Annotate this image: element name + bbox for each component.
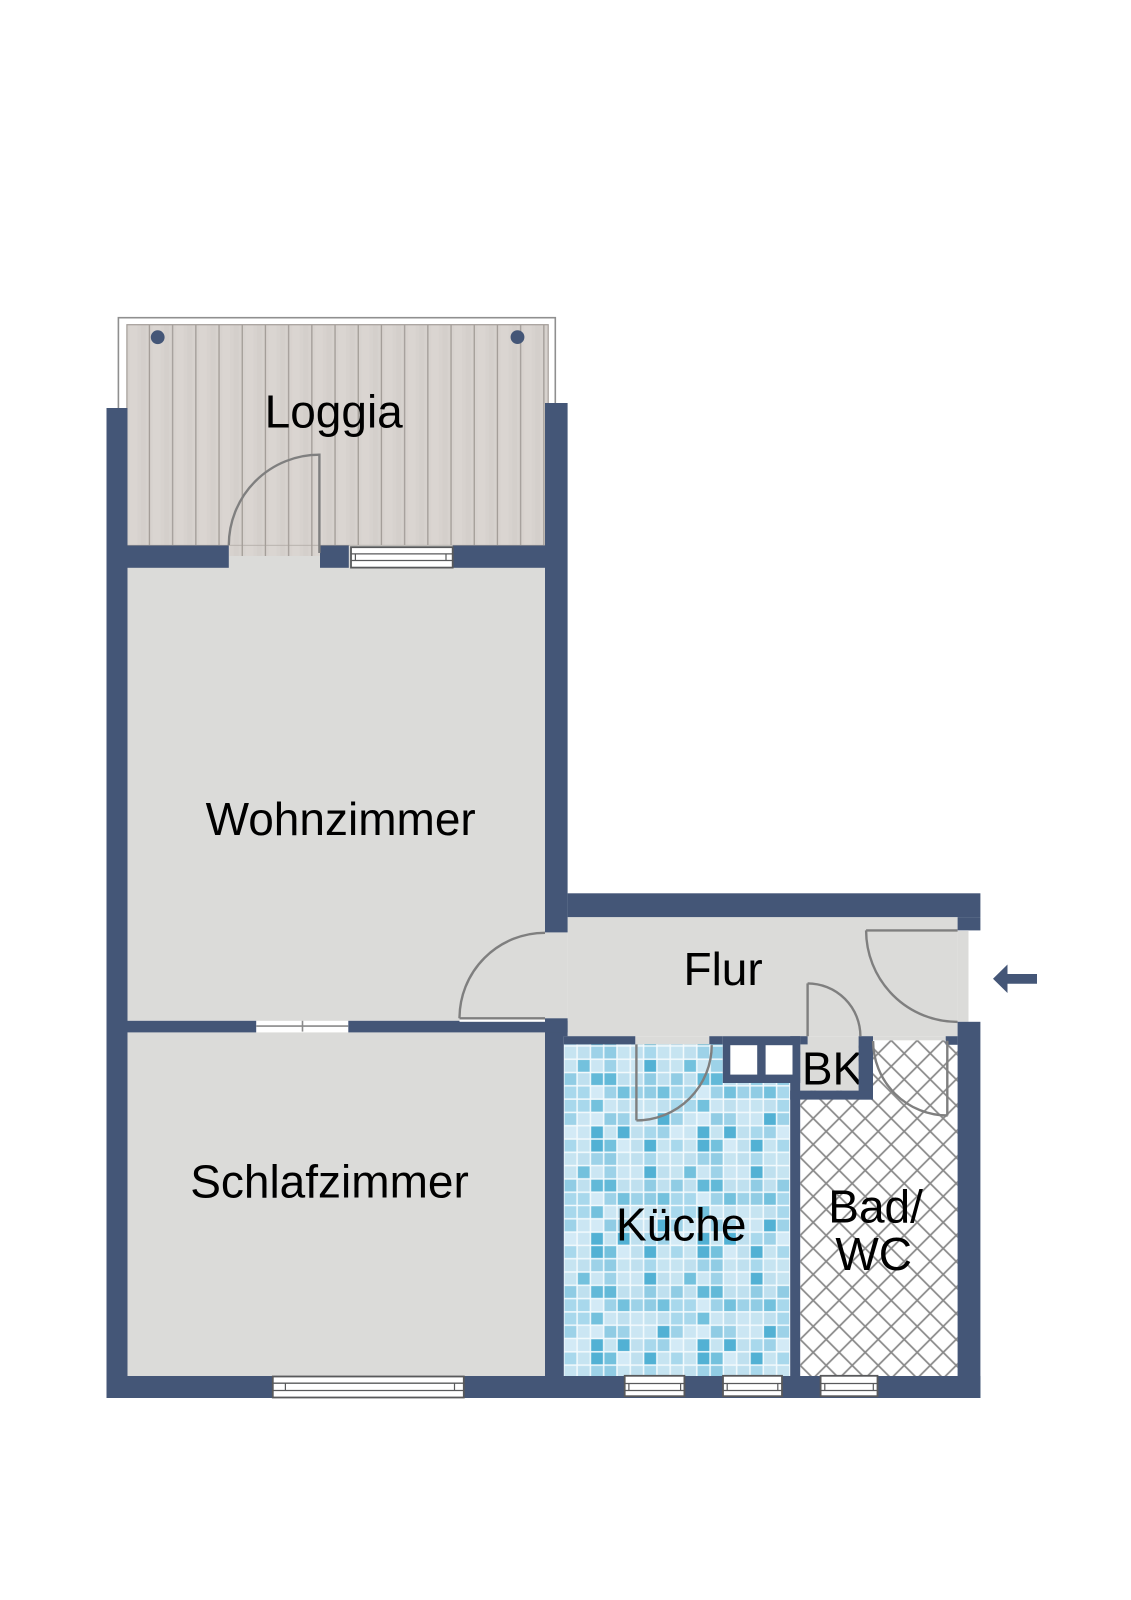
svg-text:Wohnzimmer: Wohnzimmer	[206, 793, 476, 845]
svg-text:Loggia: Loggia	[265, 386, 404, 438]
svg-text:Bad/: Bad/	[828, 1181, 923, 1233]
svg-text:WC: WC	[835, 1228, 912, 1280]
svg-text:Küche: Küche	[616, 1198, 746, 1250]
svg-text:Schlafzimmer: Schlafzimmer	[190, 1155, 469, 1207]
svg-text:BK: BK	[802, 1043, 864, 1095]
svg-text:Flur: Flur	[683, 943, 762, 995]
